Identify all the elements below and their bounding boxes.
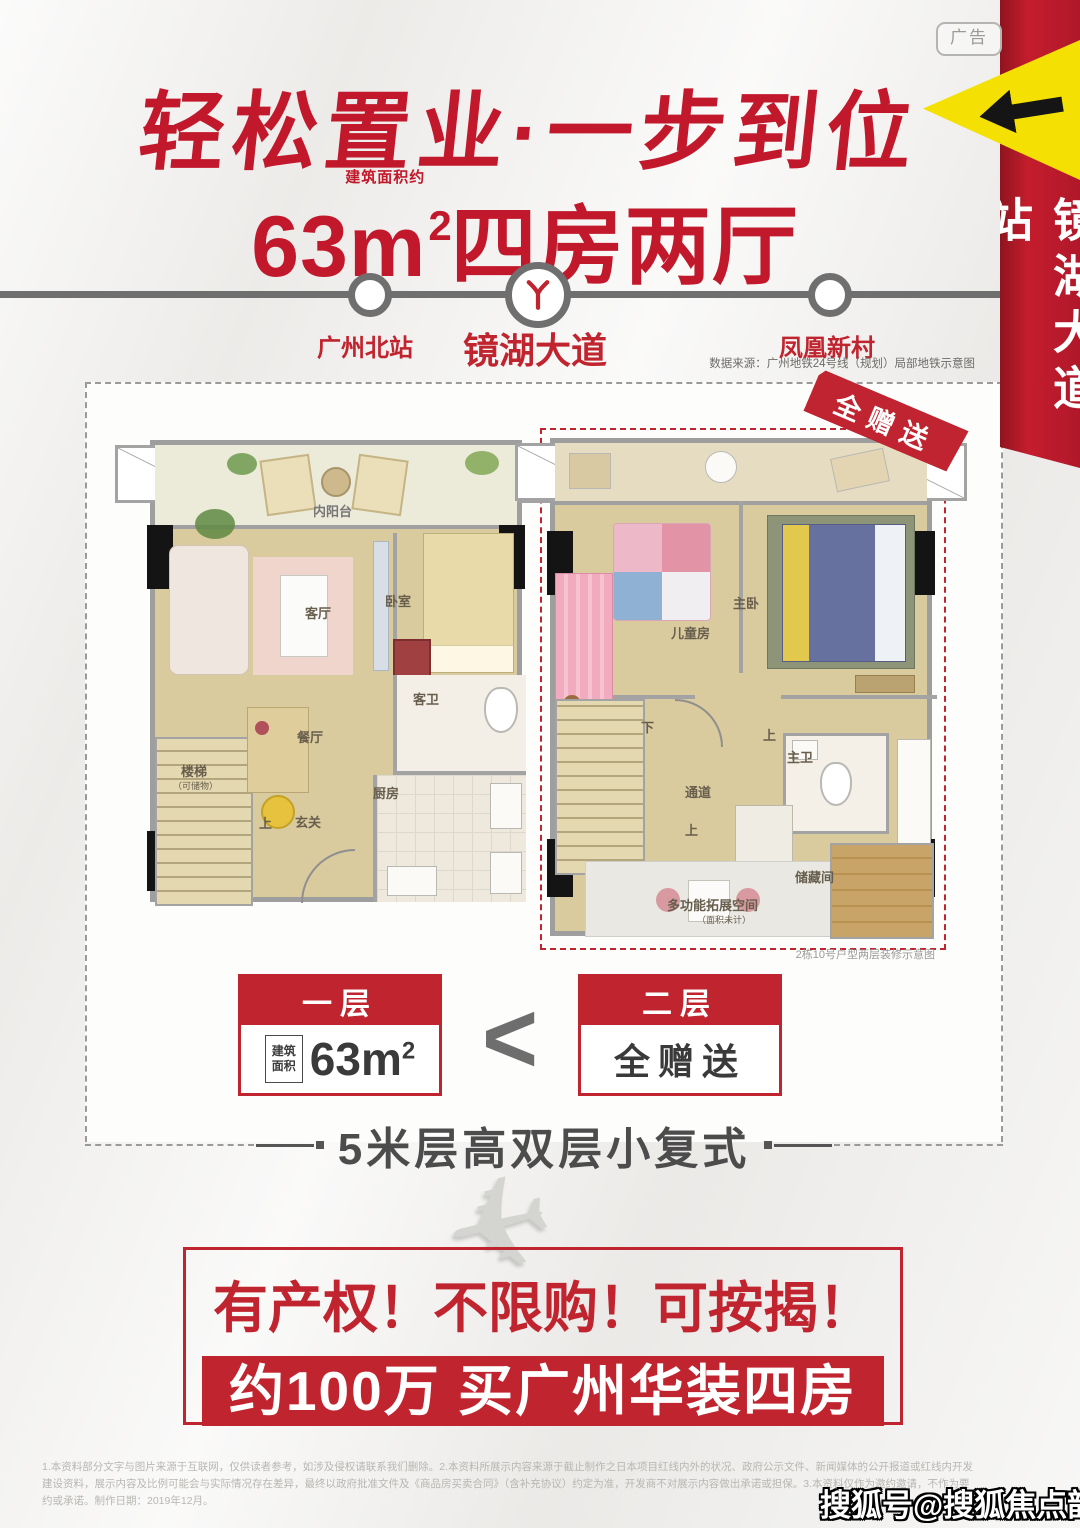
balcony-chair bbox=[351, 454, 408, 516]
stove bbox=[490, 852, 522, 894]
master-bed bbox=[767, 515, 915, 669]
promo-line2: 约100万 买广州华装四房 bbox=[202, 1356, 884, 1426]
dashed-line bbox=[834, 1144, 1003, 1146]
solid-line bbox=[774, 1144, 832, 1147]
first-floor-card-title: 一层 bbox=[241, 977, 439, 1025]
red-rug bbox=[393, 639, 431, 677]
room-label-dining: 餐厅 bbox=[297, 727, 323, 746]
area-label-line2: 面积 bbox=[272, 1059, 296, 1074]
room-label-bedroom: 卧室 bbox=[385, 591, 411, 610]
kids-play-mat bbox=[613, 523, 711, 621]
shelf bbox=[569, 453, 611, 489]
toilet bbox=[484, 687, 518, 733]
area-superscript: 2 bbox=[428, 202, 452, 249]
stairs-area bbox=[555, 699, 645, 875]
balcony-table bbox=[321, 467, 351, 497]
room-label-multifunction-note: （面积未计） bbox=[697, 913, 751, 926]
living-room-rug bbox=[253, 557, 353, 675]
promo-line1: 有产权！不限购！可按揭！ bbox=[186, 1263, 900, 1343]
room-label-master-bedroom: 主卧 bbox=[733, 593, 759, 612]
room-label-corridor: 通道 bbox=[685, 782, 711, 801]
area-label-line1: 建筑 bbox=[272, 1044, 296, 1059]
station-dot-jinghudadao bbox=[505, 262, 571, 328]
area-sup: 2 bbox=[402, 1038, 415, 1065]
rooms-text: 四房两厅 bbox=[451, 199, 799, 295]
metro-source-note: 数据来源：广州地铁24号线（规划）局部地铁示意图 bbox=[545, 355, 975, 371]
line-dot bbox=[764, 1141, 772, 1149]
second-floor-card: 二层 全赠送 bbox=[578, 974, 782, 1096]
stairs-up-label: 上 bbox=[259, 813, 272, 832]
room-label-storage: 储藏间 bbox=[795, 867, 834, 886]
bed bbox=[423, 533, 514, 673]
hall-wall-right bbox=[781, 695, 937, 699]
room-label-stairs-note: （可储物） bbox=[173, 779, 218, 792]
plant bbox=[227, 453, 257, 475]
center-wall bbox=[739, 501, 743, 673]
less-than-symbol: < bbox=[462, 981, 558, 1097]
entrance-door-arc bbox=[301, 849, 355, 903]
promo-box: 有产权！不限购！可按揭！ 约100万 买广州华装四房 bbox=[183, 1247, 903, 1425]
room-label-foyer: 玄关 bbox=[295, 812, 321, 831]
desk bbox=[735, 805, 793, 865]
sink-counter bbox=[387, 866, 437, 896]
area-label-box: 建筑 面积 bbox=[265, 1035, 303, 1083]
line-dot bbox=[316, 1141, 324, 1149]
bed-pillows bbox=[424, 645, 513, 672]
first-floor-card: 一层 建筑 面积 63m2 bbox=[238, 974, 442, 1096]
dashed-line bbox=[85, 1144, 254, 1146]
room-label-master-bath: 主卫 bbox=[787, 747, 813, 766]
floorplan-second-floor: 儿童房 主卧 主卫 通道 储藏间 多功能拓展空间 （面积未计） 下 上 上 bbox=[550, 438, 932, 936]
fridge bbox=[490, 783, 522, 829]
area-number: 63m bbox=[251, 199, 426, 295]
room-label-balcony: 内阳台 bbox=[313, 501, 352, 520]
left-arrow-icon bbox=[976, 82, 1068, 139]
main-title: 轻松置业·一步到位 bbox=[48, 62, 1011, 187]
master-bed-mattress bbox=[782, 524, 906, 662]
desk-item bbox=[830, 448, 890, 492]
room-label-guest-bath: 客卫 bbox=[413, 689, 439, 708]
poster-page: 广告 镜湖大道站 轻松置业·一步到位 建筑面积约 63m2四房两厅 广州北站 镜… bbox=[0, 0, 1080, 1528]
sohu-watermark: 搜狐号@搜狐焦点韶关站 bbox=[820, 1480, 1080, 1525]
room-label-kitchen: 厨房 bbox=[373, 783, 399, 802]
door-arc bbox=[675, 699, 723, 747]
room-label-multifunction: 多功能拓展空间 bbox=[667, 895, 758, 914]
station-dot-fenghuangxincun bbox=[808, 273, 852, 317]
cabinet-column bbox=[897, 739, 931, 859]
area-number: 63m bbox=[310, 1033, 402, 1085]
toilet bbox=[820, 762, 852, 806]
plant bbox=[465, 451, 499, 475]
room-label-kids-room: 儿童房 bbox=[671, 623, 710, 642]
room-label-stairs: 楼梯 bbox=[181, 761, 207, 780]
room-label-living: 客厅 bbox=[305, 603, 331, 622]
stairs-down-label: 下 bbox=[641, 717, 654, 736]
duplex-tagline: 5米层高双层小复式 bbox=[324, 1113, 764, 1177]
ad-badge: 广告 bbox=[936, 22, 1002, 56]
floorplan-first-floor: 内阳台 客厅 卧室 客卫 餐厅 厨房 玄关 楼梯 （可储物） 上 bbox=[150, 440, 522, 902]
clock bbox=[705, 451, 737, 483]
table-flower bbox=[255, 721, 269, 735]
dresser bbox=[855, 675, 915, 693]
first-floor-area: 63m2 bbox=[310, 1032, 415, 1086]
second-floor-value: 全赠送 bbox=[614, 1033, 746, 1085]
sofa bbox=[169, 545, 249, 675]
floorplan-caption: 2栋10号户型两层装修示意图 bbox=[660, 946, 935, 962]
tagline-row: 5米层高双层小复式 bbox=[85, 1122, 1003, 1168]
station-dot-guangzhoubei bbox=[348, 273, 392, 317]
dining-table bbox=[247, 707, 309, 793]
storage-room-area bbox=[830, 843, 934, 939]
stairs-up-label: 上 bbox=[763, 725, 776, 744]
arrow-shaft bbox=[1004, 97, 1064, 121]
wardrobe-band bbox=[555, 443, 927, 505]
plant bbox=[195, 509, 235, 539]
solid-line bbox=[256, 1144, 314, 1147]
second-floor-card-title: 二层 bbox=[581, 977, 779, 1025]
area-note: 建筑面积约 bbox=[345, 166, 425, 187]
station-label-guangzhoubei: 广州北站 bbox=[300, 328, 430, 363]
stairs-up-label-2: 上 bbox=[685, 820, 698, 839]
balcony-chair bbox=[259, 454, 316, 516]
metro-logo-icon bbox=[521, 278, 555, 312]
